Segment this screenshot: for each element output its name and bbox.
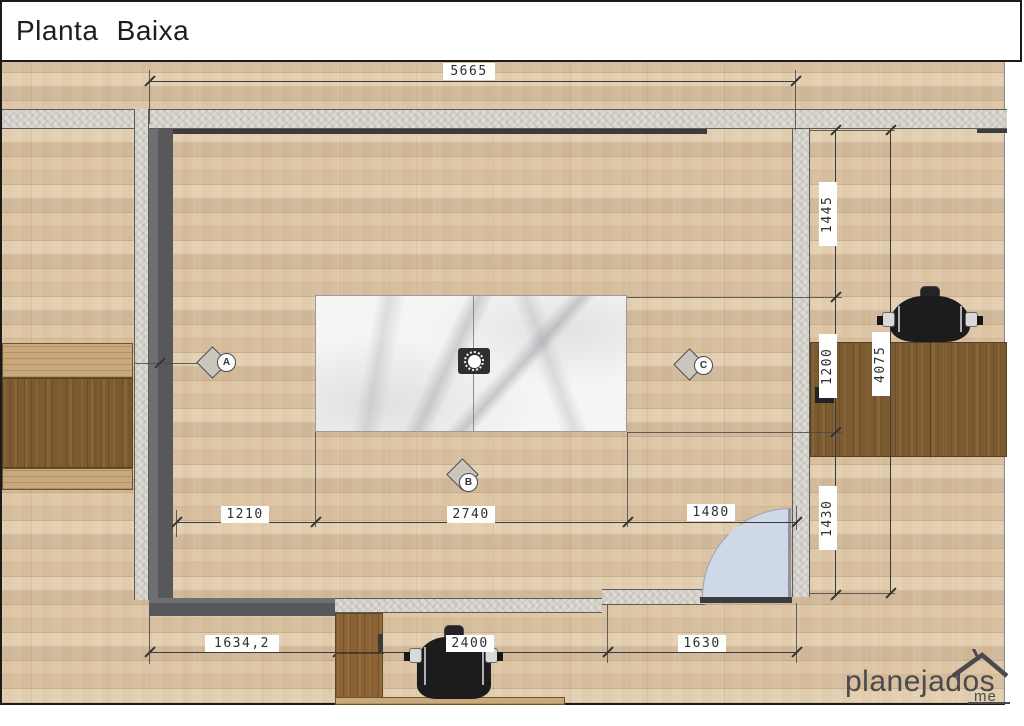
watermark-logo: planejados me xyxy=(845,655,1010,705)
extension-line xyxy=(315,432,316,527)
office-chair-top xyxy=(882,286,978,344)
left-wall xyxy=(149,129,173,600)
roof-icon xyxy=(950,649,1010,679)
section-marker-bubble: C xyxy=(694,356,713,375)
extension-line xyxy=(810,593,895,594)
left-wall-outer xyxy=(134,109,149,600)
desk-right xyxy=(810,342,1007,457)
top-wall xyxy=(2,109,1007,129)
floor-plan-sheet: Planta Baixa xyxy=(0,0,1024,726)
cabinet-divider xyxy=(336,653,384,654)
dim-label-bottom-center: 2400 xyxy=(446,635,494,652)
dim-label-right-bottom: 1430 xyxy=(819,486,837,550)
island-fixture-icon xyxy=(458,348,490,374)
section-marker-bubble: A xyxy=(217,353,236,372)
right-wall xyxy=(792,129,810,597)
extension-line xyxy=(810,130,895,131)
desk-left xyxy=(2,378,133,468)
chair-seat xyxy=(890,296,970,342)
dim-line-right-outer xyxy=(890,130,891,593)
dim-label-bottom-right: 1630 xyxy=(678,635,726,652)
bottom-wall-left xyxy=(149,598,335,616)
extension-line xyxy=(627,432,842,433)
chair-armrest xyxy=(965,312,978,327)
dim-label-right-total: 4075 xyxy=(872,332,890,396)
chair-armrest xyxy=(409,648,422,663)
dim-label-right-top: 1445 xyxy=(819,182,837,246)
plan-canvas: 5665 1445 1200 1430 4075 1210 2740 1480 xyxy=(0,62,1005,705)
dim-label-mid-right: 1480 xyxy=(687,504,735,521)
top-wall-shadow xyxy=(162,129,707,134)
extension-line xyxy=(796,506,797,530)
dim-label-bottom-left: 1634,2 xyxy=(205,635,279,652)
extension-line xyxy=(627,297,842,298)
extension-line xyxy=(149,616,150,664)
dim-line-top xyxy=(149,81,795,82)
dim-label-right-mid: 1200 xyxy=(819,334,837,398)
bottom-wall-right xyxy=(602,589,705,605)
page-title: Planta Baixa xyxy=(16,15,189,47)
bottom-wall-center xyxy=(335,598,602,613)
chair-armrest xyxy=(882,312,895,327)
door-threshold xyxy=(700,597,792,603)
top-wall-shadow-right xyxy=(977,129,1007,133)
counter-left-top xyxy=(2,343,133,378)
watermark-underline xyxy=(968,702,1010,704)
kitchen-island xyxy=(315,295,627,432)
dim-label-mid-center: 2740 xyxy=(447,506,495,523)
cabinet-bottom xyxy=(335,613,383,700)
section-marker-bubble: B xyxy=(459,473,478,492)
counter-left-bottom xyxy=(2,468,133,490)
title-block: Planta Baixa xyxy=(0,0,1022,62)
desk-seam xyxy=(930,343,931,458)
section-line-a xyxy=(134,363,202,364)
dim-label-width-total: 5665 xyxy=(443,63,495,80)
extension-line xyxy=(607,605,608,663)
dim-label-mid-left: 1210 xyxy=(221,506,269,523)
dim-tick xyxy=(830,589,841,600)
cabinet-handle-icon xyxy=(378,634,383,653)
extension-line xyxy=(627,432,628,527)
